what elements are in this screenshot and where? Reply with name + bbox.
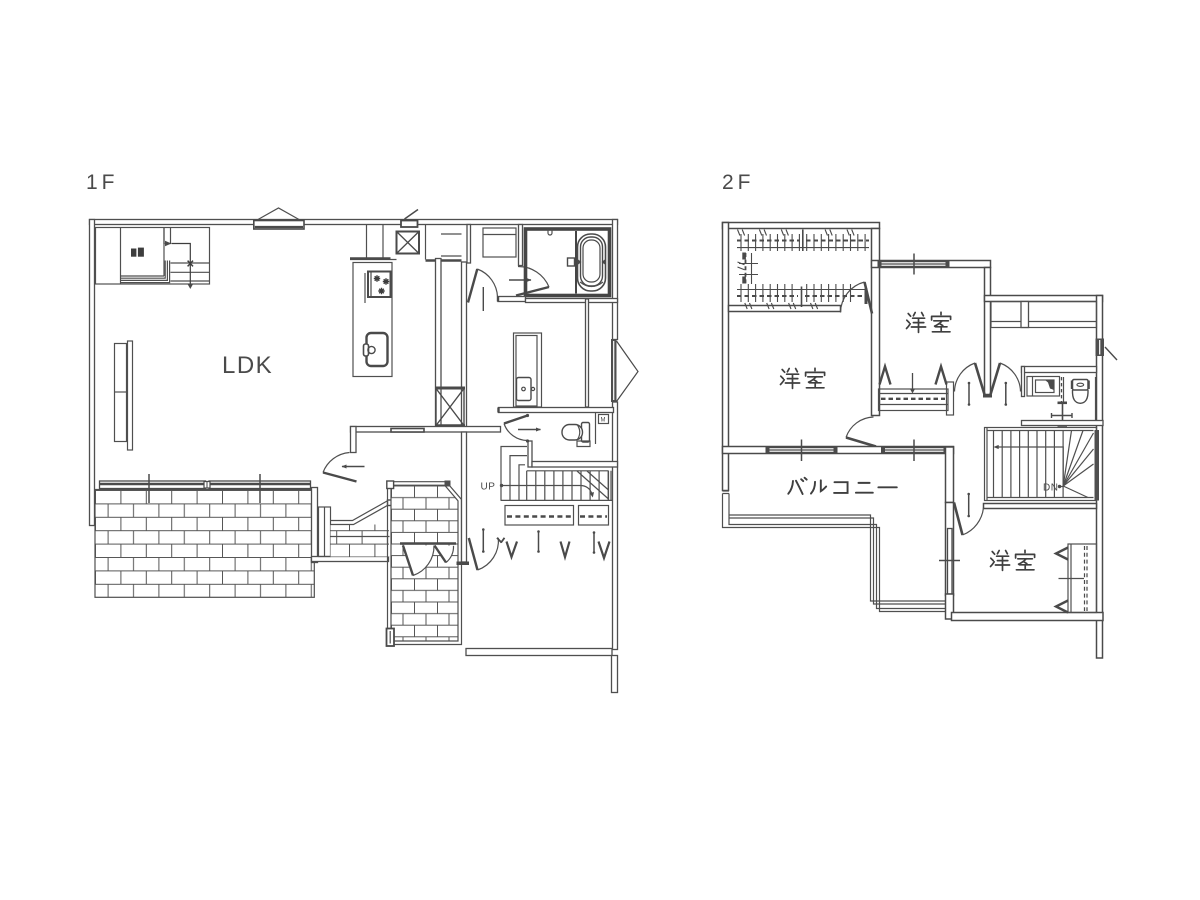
- svg-text:DN: DN: [1043, 483, 1058, 494]
- svg-text:LDK: LDK: [222, 352, 273, 379]
- svg-text:M: M: [601, 418, 606, 424]
- svg-text:UP: UP: [481, 482, 496, 493]
- svg-text:2F: 2F: [722, 171, 755, 194]
- svg-text:1F: 1F: [86, 171, 119, 194]
